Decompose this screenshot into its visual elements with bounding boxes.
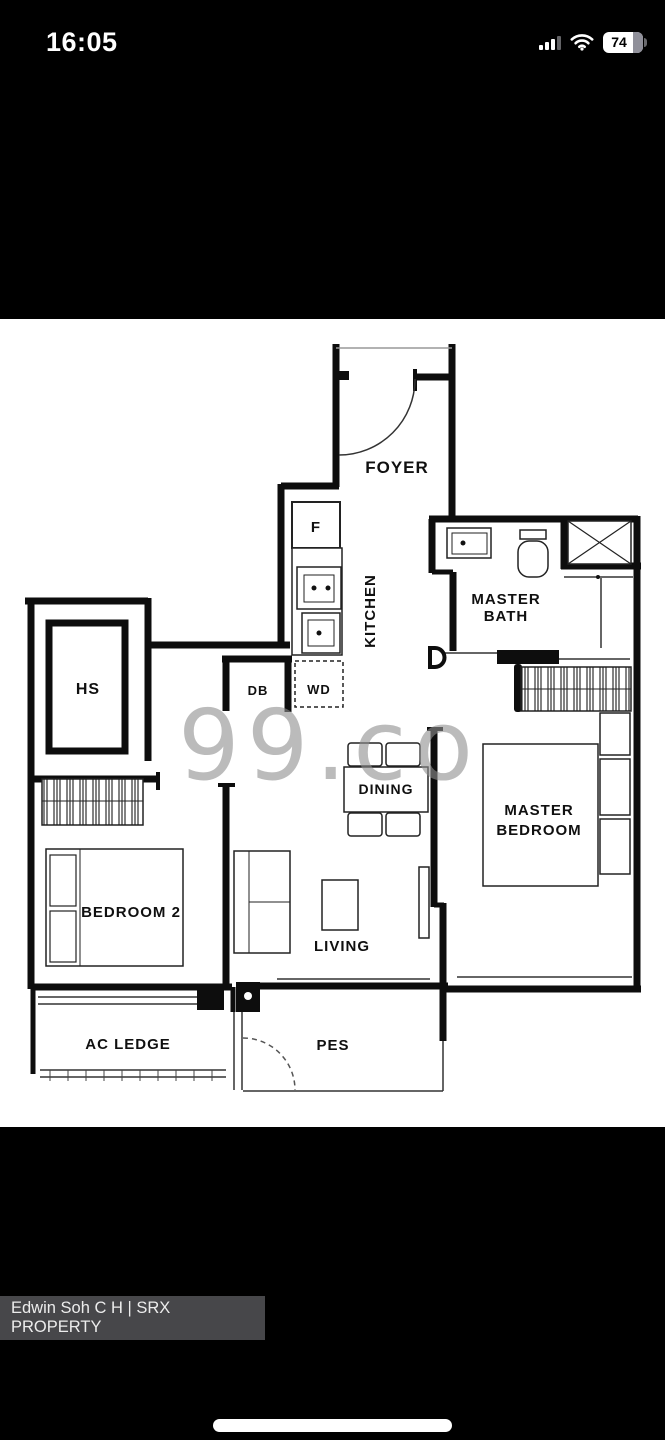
pes-gate-arc — [243, 1038, 295, 1090]
label-master-bedroom-1: MASTER — [504, 802, 573, 819]
entry-jamb-step — [336, 371, 349, 380]
entry-door-arc — [339, 379, 415, 455]
cellular-signal-icon — [539, 35, 561, 50]
label-bedroom-2: BEDROOM 2 — [81, 904, 181, 921]
home-indicator[interactable] — [213, 1419, 452, 1432]
status-time: 16:05 — [46, 27, 118, 58]
wall-jog-block — [197, 988, 224, 1010]
ac-ledge-railing — [50, 1070, 212, 1081]
attribution-text: Edwin Soh C H | SRX PROPERTY — [11, 1299, 265, 1337]
label-kitchen: KITCHEN — [362, 574, 379, 648]
tv-console — [419, 867, 429, 938]
toilet-tank — [520, 530, 546, 539]
toilet — [518, 541, 548, 577]
label-master-bath-2: BATH — [484, 608, 529, 625]
label-living: LIVING — [314, 938, 370, 955]
dining-chair — [348, 813, 382, 836]
status-icons: 74 — [539, 32, 643, 53]
floorplan-drawing: FOYER F KITCHEN MASTER BATH HS DB WD DIN… — [0, 319, 665, 1127]
battery-tip — [644, 38, 647, 47]
coffee-table — [322, 880, 358, 930]
door-pivot-dot — [244, 992, 252, 1000]
watermark-99co: 99.co — [178, 689, 480, 802]
label-ac-ledge: AC LEDGE — [85, 1036, 171, 1053]
master-bedroom-furniture — [483, 713, 630, 886]
pillow — [50, 855, 76, 906]
label-hs: HS — [76, 681, 100, 698]
master-bath-fittings — [447, 521, 631, 579]
master-wardrobe — [521, 667, 631, 711]
battery-percent: 74 — [603, 32, 635, 53]
label-pes: PES — [316, 1037, 349, 1054]
bedroom2-wardrobe — [42, 779, 143, 825]
floorplan-image[interactable]: FOYER F KITCHEN MASTER BATH HS DB WD DIN… — [0, 319, 665, 1127]
dining-chair — [386, 813, 420, 836]
bath-door — [430, 648, 445, 667]
label-master-bath-1: MASTER — [471, 591, 540, 608]
label-foyer: FOYER — [365, 458, 429, 477]
nightstand — [600, 819, 630, 874]
label-fridge: F — [311, 519, 321, 536]
nightstand — [600, 713, 630, 755]
nightstand — [600, 759, 630, 815]
attribution-bar: Edwin Soh C H | SRX PROPERTY — [0, 1296, 265, 1340]
pillow — [50, 911, 76, 962]
master-bedroom-door-header — [497, 650, 559, 664]
wifi-icon — [570, 33, 594, 51]
status-bar: 16:05 74 — [0, 0, 665, 70]
battery-icon: 74 — [603, 32, 643, 53]
label-master-bedroom-2: BEDROOM — [496, 822, 581, 839]
